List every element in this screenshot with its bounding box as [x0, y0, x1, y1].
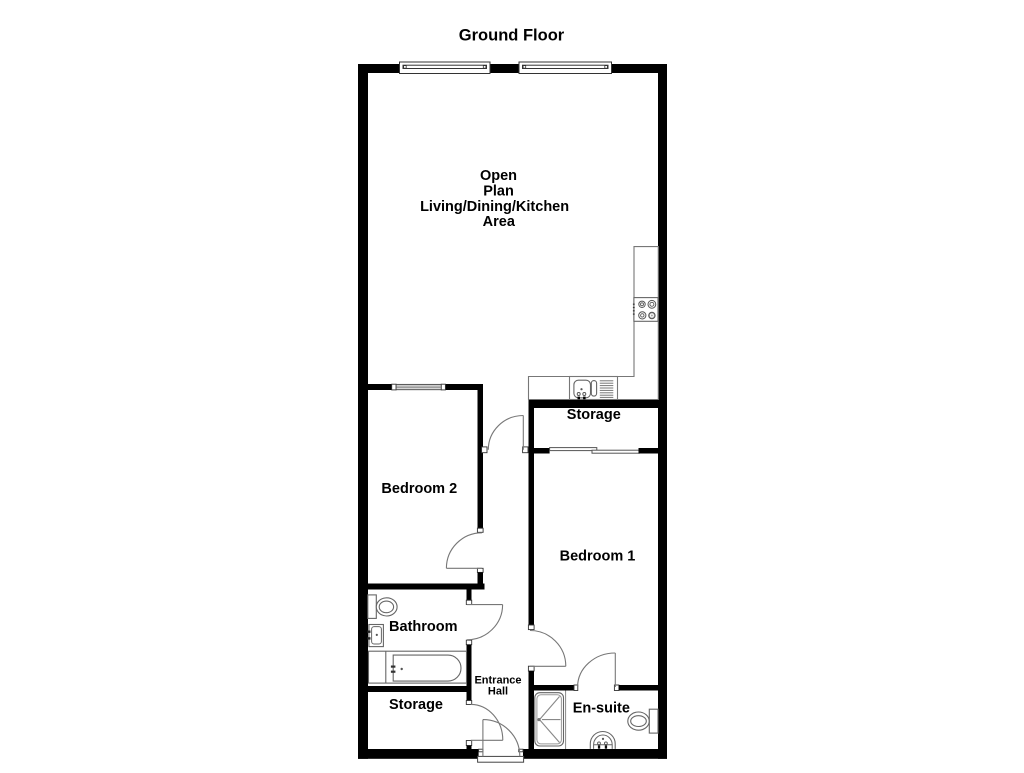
svg-text:Storage: Storage — [567, 407, 621, 423]
svg-text:Storage: Storage — [389, 697, 443, 713]
svg-text:Living/Dining/Kitchen: Living/Dining/Kitchen — [420, 199, 569, 215]
svg-text:Hall: Hall — [488, 685, 508, 697]
svg-text:Bedroom 1: Bedroom 1 — [560, 548, 636, 564]
svg-text:En-suite: En-suite — [573, 701, 630, 717]
svg-text:Open: Open — [480, 168, 517, 184]
svg-text:Bathroom: Bathroom — [389, 619, 457, 635]
svg-text:Ground Floor: Ground Floor — [459, 27, 565, 45]
svg-text:Bedroom 2: Bedroom 2 — [381, 481, 457, 497]
svg-text:Plan: Plan — [483, 183, 514, 199]
svg-text:Area: Area — [483, 214, 516, 230]
